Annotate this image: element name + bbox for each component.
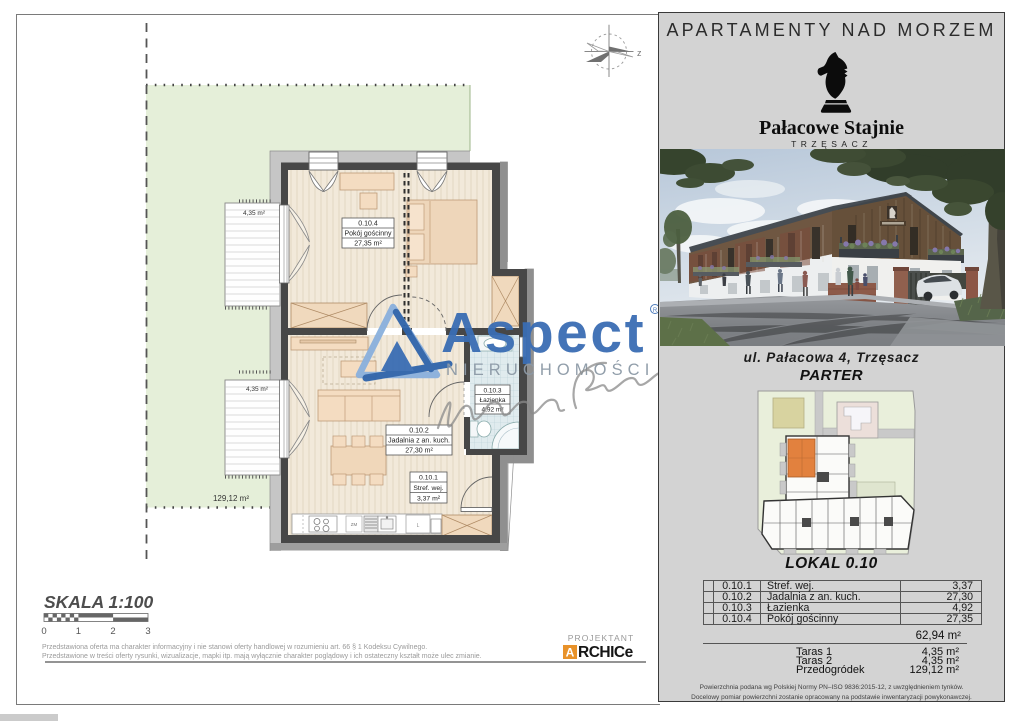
svg-text:1: 1	[76, 626, 81, 637]
svg-text:Stref. wej.: Stref. wej.	[413, 485, 443, 492]
svg-text:27,35 m²: 27,35 m²	[354, 241, 382, 248]
svg-text:RCHICe: RCHICe	[578, 644, 634, 661]
svg-text:129,12 m²: 129,12 m²	[213, 494, 249, 503]
svg-text:Pokój gościnny: Pokój gościnny	[344, 231, 392, 238]
svg-text:3: 3	[145, 626, 150, 637]
svg-text:0.10.2: 0.10.2	[409, 428, 429, 435]
svg-text:ZM: ZM	[351, 522, 358, 527]
svg-text:2: 2	[110, 626, 115, 637]
svg-text:4,35 m²: 4,35 m²	[243, 210, 266, 217]
svg-text:Przedstawione w treści oferty: Przedstawione w treści oferty rysunki, w…	[42, 653, 482, 660]
svg-text:z: z	[637, 48, 642, 58]
svg-text:L: L	[417, 523, 420, 529]
svg-text:PROJEKTANT: PROJEKTANT	[568, 633, 635, 643]
svg-text:A: A	[566, 646, 575, 660]
svg-text:0: 0	[41, 626, 46, 637]
svg-text:3,37 m²: 3,37 m²	[417, 496, 441, 503]
svg-text:SKALA 1:100: SKALA 1:100	[44, 592, 154, 612]
svg-text:Przedstawiona oferta ma charak: Przedstawiona oferta ma charakter inform…	[42, 644, 427, 651]
svg-text:0.10.4: 0.10.4	[358, 221, 378, 228]
svg-text:Aspect: Aspect	[441, 301, 646, 365]
svg-text:0.10.1: 0.10.1	[419, 475, 438, 482]
svg-text:Jadalnia z an. kuch.: Jadalnia z an. kuch.	[388, 438, 450, 445]
svg-text:4,35 m²: 4,35 m²	[246, 386, 269, 393]
svg-text:0.10.3: 0.10.3	[483, 388, 501, 395]
svg-text:27,30 m²: 27,30 m²	[405, 448, 433, 455]
svg-text:NIERUCHOMOŚCI: NIERUCHOMOŚCI	[446, 360, 654, 379]
